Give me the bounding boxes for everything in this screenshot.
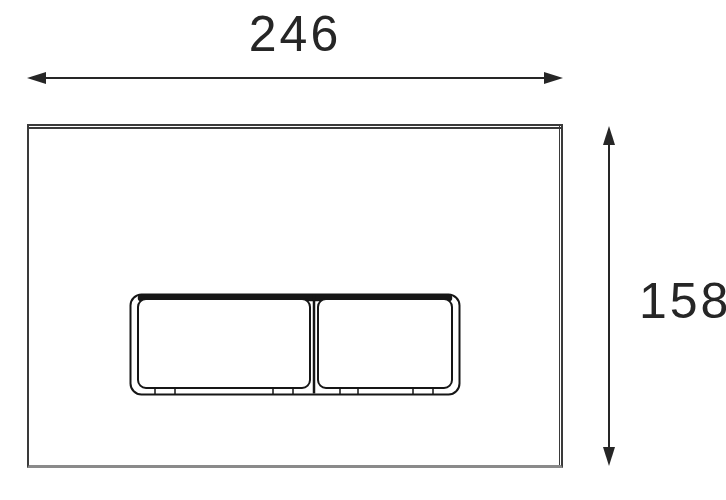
width-dimension-arrow xyxy=(27,70,563,86)
width-dimension-label: 246 xyxy=(27,9,563,59)
height-dimension-label: 158 xyxy=(639,276,726,326)
plate-right-bevel-line xyxy=(559,126,561,465)
height-arrowhead-top-icon xyxy=(603,126,615,145)
height-arrowhead-bottom-icon xyxy=(603,447,615,466)
dimension-drawing: 246 158 xyxy=(0,0,726,500)
button-panel xyxy=(128,292,462,398)
width-arrowhead-right-icon xyxy=(544,72,563,84)
width-arrowhead-left-icon xyxy=(27,72,46,84)
height-dimension-arrow xyxy=(601,126,617,466)
small-flush-button xyxy=(318,299,452,388)
plate-top-bevel-line xyxy=(29,127,561,129)
large-flush-button xyxy=(138,299,310,388)
